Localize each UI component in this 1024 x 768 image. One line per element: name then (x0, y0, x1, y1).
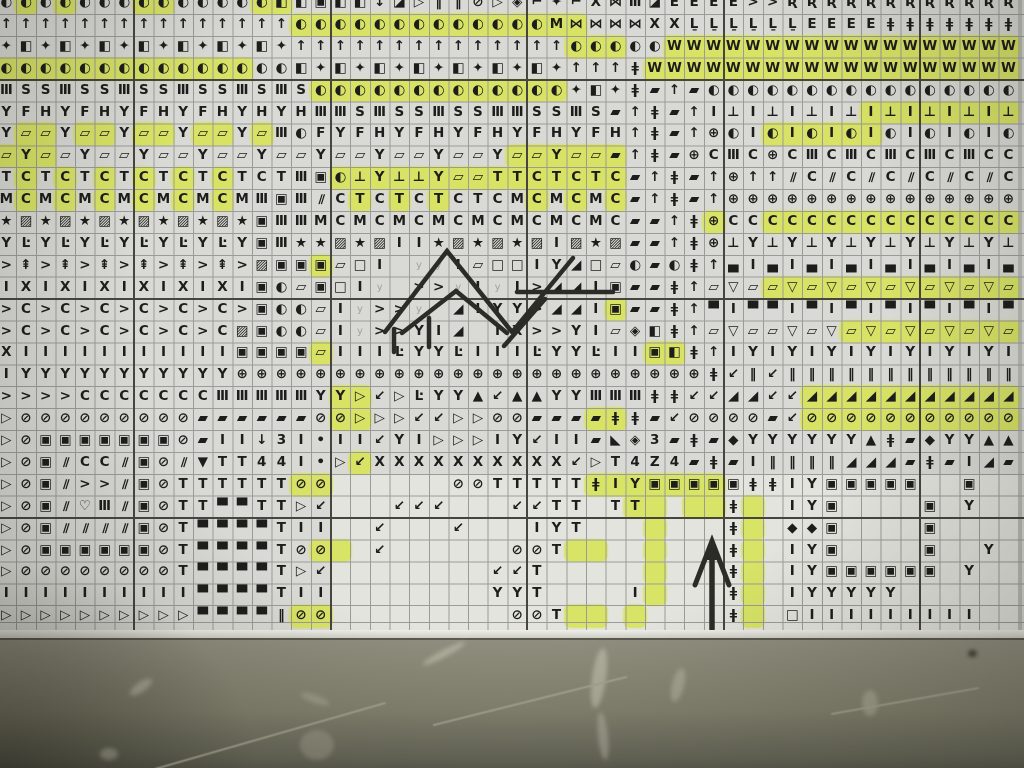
grid-cell-symbol: ▰ (665, 123, 685, 145)
grid-cell-symbol: ◢ (900, 386, 920, 408)
grid-cell-symbol: C (783, 145, 803, 167)
grid-cell-symbol: I (311, 518, 331, 540)
grid-cell-symbol: T (350, 189, 370, 211)
grid-cell-symbol: ǂ (684, 342, 704, 364)
grid-cell-symbol: ⊘ (468, 0, 488, 14)
grid-cell-symbol: > (154, 255, 174, 277)
grid-cell-symbol: W (783, 58, 803, 80)
grid-cell-symbol: ◐ (272, 299, 292, 321)
grid-cell-symbol: ↑ (684, 299, 704, 321)
grid-cell-symbol: C (959, 211, 979, 233)
grid-cell-symbol: ▰ (625, 277, 645, 299)
grid-cell-symbol: W (684, 36, 704, 58)
grid-cell-symbol: 3 (645, 430, 665, 452)
grid-cell-symbol: ◐ (625, 255, 645, 277)
grid-cell-symbol: ↑ (193, 14, 213, 36)
grid-cell-symbol: ◐ (881, 80, 901, 102)
grid-cell-symbol: I (606, 342, 626, 364)
grid-cell-symbol: Ŀ (55, 233, 75, 255)
grid-cell-symbol: I (409, 233, 429, 255)
grid-cell-symbol: C (704, 145, 724, 167)
grid-cell-symbol: Y (370, 145, 390, 167)
grid-cell-symbol: C (448, 211, 468, 233)
grid-cell-symbol: ↑ (527, 36, 547, 58)
grid-cell-symbol: W (900, 36, 920, 58)
grid-cell-symbol: 4 (625, 452, 645, 474)
grid-cell-symbol: ▣ (311, 0, 331, 14)
grid-cell-symbol: I (468, 277, 488, 299)
grid-cell-symbol: ★ (429, 233, 449, 255)
grid-cell-symbol: Ʀ (802, 0, 822, 14)
grid-cell-symbol: ✦ (114, 36, 134, 58)
grid-cell-symbol: ◐ (36, 58, 56, 80)
grid-cell-symbol: F (16, 102, 36, 124)
grid-cell-symbol: ∕∕ (55, 496, 75, 518)
grid-cell-symbol: Y (802, 583, 822, 605)
grid-cell-symbol: F (468, 123, 488, 145)
grid-cell-symbol: ▀ (959, 299, 979, 321)
grid-cell-symbol: ▽ (724, 277, 744, 299)
grid-cell-symbol: ▱ (154, 123, 174, 145)
grid-cell-symbol: ∕∕ (55, 474, 75, 496)
grid-cell-symbol: ◐ (134, 0, 154, 14)
grid-cell-symbol: ▣ (252, 299, 272, 321)
grid-cell-symbol: ∕∕ (55, 518, 75, 540)
grid-cell-symbol: ◧ (586, 80, 606, 102)
grid-cell-symbol: ‖ (272, 605, 292, 627)
grid-cell-symbol: I (783, 561, 803, 583)
grid-cell-symbol: ◐ (370, 80, 390, 102)
grid-cell-symbol: ▱ (36, 145, 56, 167)
grid-cell-symbol: ⊘ (311, 408, 331, 430)
grid-cell-symbol: ✦ (468, 58, 488, 80)
grid-cell-symbol: ↓ (370, 0, 390, 14)
grid-cell-symbol: ▱ (311, 299, 331, 321)
grid-cell-symbol: ▰ (625, 233, 645, 255)
grid-cell-symbol: W (665, 36, 685, 58)
grid-cell-symbol: > (0, 386, 16, 408)
grid-cell-symbol: ↙ (507, 561, 527, 583)
grid-cell-symbol: Y (448, 386, 468, 408)
grid-cell-symbol: ▀ (232, 605, 252, 627)
grid-cell-symbol: ▣ (95, 430, 115, 452)
grid-cell-symbol: ✦ (154, 36, 174, 58)
grid-cell-symbol: C (16, 167, 36, 189)
grid-cell-symbol: ▱ (252, 123, 272, 145)
grid-cell-symbol: ▱ (16, 123, 36, 145)
grid-cell-symbol: Ⅲ (272, 211, 292, 233)
wall-scuff-mark (968, 650, 977, 657)
grid-cell-symbol: I (763, 342, 783, 364)
grid-cell-symbol: ▱ (95, 123, 115, 145)
grid-cell-symbol: ⊕ (370, 364, 390, 386)
grid-cell-symbol: Ⅲ (488, 102, 508, 124)
grid-cell-symbol: I (173, 583, 193, 605)
grid-cell-symbol: T (606, 496, 626, 518)
grid-cell-symbol: ▱ (134, 123, 154, 145)
grid-cell-symbol: T (252, 474, 272, 496)
grid-cell-symbol: ◐ (527, 80, 547, 102)
grid-cell-symbol: Ʀ (861, 0, 881, 14)
grid-cell-symbol: ↙ (370, 518, 390, 540)
grid-cell-symbol: ǂ (724, 561, 744, 583)
grid-cell-symbol: C (95, 321, 115, 343)
grid-cell-symbol: ◐ (173, 58, 193, 80)
grid-cell-symbol: Y (114, 123, 134, 145)
grid-cell-symbol: Y (36, 364, 56, 386)
grid-cell-symbol: W (802, 58, 822, 80)
grid-cell-symbol: I (999, 342, 1019, 364)
grid-cell-symbol: ▰ (645, 277, 665, 299)
grid-cell-symbol: I (979, 102, 999, 124)
grid-cell-symbol: ‖ (900, 364, 920, 386)
grid-cell-symbol: ⊘ (95, 408, 115, 430)
grid-cell-symbol: ▲ (468, 386, 488, 408)
grid-cell-symbol: ▣ (822, 496, 842, 518)
grid-cell-symbol: ▣ (704, 474, 724, 496)
grid-cell-symbol: ◐ (724, 123, 744, 145)
grid-cell-symbol: C (193, 386, 213, 408)
grid-cell-symbol: ◣ (606, 430, 626, 452)
grid-cell-symbol: ▣ (252, 277, 272, 299)
grid-cell-symbol: T (429, 189, 449, 211)
grid-cell-symbol: ◪ (390, 0, 410, 14)
grid-cell-symbol: I (606, 474, 626, 496)
grid-cell-symbol: Y (547, 255, 567, 277)
grid-cell-symbol: X (527, 452, 547, 474)
grid-cell-symbol: T (272, 496, 292, 518)
grid-cell-symbol: C (999, 167, 1019, 189)
grid-cell-symbol: ▱ (920, 277, 940, 299)
grid-cell-symbol: ▽ (822, 321, 842, 343)
grid-cell-symbol: ✦ (311, 58, 331, 80)
grid-cell-symbol: T (193, 167, 213, 189)
grid-cell-symbol: ⊘ (36, 561, 56, 583)
grid-cell-symbol: ▷ (55, 605, 75, 627)
grid-cell-symbol: > (36, 321, 56, 343)
grid-cell-symbol: ↑ (625, 123, 645, 145)
grid-cell-symbol: ◐ (16, 0, 36, 14)
grid-cell-symbol: C (213, 321, 233, 343)
grid-cell-symbol: H (154, 102, 174, 124)
grid-cell-symbol: ▣ (311, 167, 331, 189)
grid-cell-symbol: ↑ (743, 167, 763, 189)
grid-cell-symbol: T (173, 496, 193, 518)
grid-cell-symbol: ▰ (900, 430, 920, 452)
grid-cell-symbol: M (507, 189, 527, 211)
grid-cell-symbol: Ⅲ (232, 80, 252, 102)
grid-cell-symbol: ⋈ (566, 14, 586, 36)
grid-cell-symbol: ↑ (665, 80, 685, 102)
grid-cell-symbol: ◢ (547, 299, 567, 321)
grid-cell-symbol: ◐ (507, 14, 527, 36)
grid-cell-symbol: □ (586, 255, 606, 277)
grid-cell-symbol: Y (566, 123, 586, 145)
grid-cell-symbol: ⇞ (173, 255, 193, 277)
grid-cell-symbol: ▣ (920, 540, 940, 562)
grid-cell-symbol: ▲ (861, 430, 881, 452)
grid-cell-symbol: ◐ (841, 123, 861, 145)
grid-cell-symbol: ⊘ (743, 408, 763, 430)
grid-cell-symbol: Ⅲ (429, 102, 449, 124)
grid-cell-symbol: ▷ (488, 0, 508, 14)
grid-cell-symbol: ▱ (606, 321, 626, 343)
grid-cell-symbol: ↙ (488, 386, 508, 408)
grid-cell-symbol: ⇞ (55, 255, 75, 277)
grid-cell-symbol: ⊕ (390, 364, 410, 386)
grid-cell-symbol: H (291, 102, 311, 124)
grid-cell-symbol: ◧ (213, 36, 233, 58)
grid-cell-symbol: C (213, 167, 233, 189)
grid-cell-symbol: I (841, 605, 861, 627)
grid-cell-symbol: I (232, 430, 252, 452)
grid-cell-symbol: ↑ (704, 255, 724, 277)
grid-cell-symbol: I (0, 277, 16, 299)
grid-cell-symbol: ▱ (95, 145, 115, 167)
grid-cell-symbol: ▰ (566, 408, 586, 430)
grid-cell-symbol: M (547, 14, 567, 36)
grid-cell-symbol: Y (252, 145, 272, 167)
grid-cell-symbol: C (134, 321, 154, 343)
grid-cell-symbol: C (920, 167, 940, 189)
grid-cell-symbol: ▰ (665, 145, 685, 167)
grid-cell-symbol: W (841, 58, 861, 80)
grid-cell-symbol: W (861, 58, 881, 80)
grid-cell-symbol: F (75, 102, 95, 124)
grid-cell-symbol: I (783, 299, 803, 321)
grid-cell-symbol: ◐ (763, 123, 783, 145)
grid-cell-symbol: C (213, 299, 233, 321)
grid-cell-symbol: I (783, 474, 803, 496)
grid-cell-symbol: ∕∕ (75, 518, 95, 540)
grid-cell-symbol: ◐ (95, 58, 115, 80)
grid-cell-symbol: Y (507, 583, 527, 605)
grid-cell-symbol: I (802, 605, 822, 627)
grid-cell-symbol: I (822, 102, 842, 124)
grid-cell-symbol: I (154, 583, 174, 605)
grid-cell-symbol: I (900, 102, 920, 124)
grid-cell-symbol: X (134, 277, 154, 299)
grid-cell-symbol: ⊘ (488, 408, 508, 430)
grid-cell-symbol: C (95, 452, 115, 474)
grid-cell-symbol: C (173, 189, 193, 211)
grid-cell-symbol: Y (114, 364, 134, 386)
grid-cell-symbol: C (900, 211, 920, 233)
grid-cell-symbol: ◢ (920, 386, 940, 408)
grid-cell-symbol: ▰ (606, 102, 626, 124)
grid-cell-symbol: Ⅲ (566, 102, 586, 124)
grid-cell-symbol: S (16, 80, 36, 102)
grid-cell-symbol: ◐ (154, 58, 174, 80)
grid-cell-symbol: ǂ (645, 145, 665, 167)
grid-cell-symbol: I (900, 605, 920, 627)
grid-cell-symbol: ▽ (861, 277, 881, 299)
grid-cell-symbol: X (665, 14, 685, 36)
grid-cell-symbol: ǂ (586, 474, 606, 496)
grid-cell-symbol: ‖ (448, 0, 468, 14)
grid-cell-symbol: T (173, 561, 193, 583)
grid-cell-symbol: ⊕ (350, 364, 370, 386)
grid-cell-symbol: C (488, 189, 508, 211)
grid-cell-symbol: ▰ (900, 452, 920, 474)
grid-cell-symbol: ↙ (665, 408, 685, 430)
grid-cell-symbol: I (861, 255, 881, 277)
grid-cell-symbol: C (743, 145, 763, 167)
grid-cell-symbol: T (252, 496, 272, 518)
grid-cell-symbol: ▰ (232, 408, 252, 430)
grid-cell-symbol: ‖ (783, 364, 803, 386)
grid-cell-symbol: □ (783, 605, 803, 627)
grid-cell-symbol: ⊘ (527, 540, 547, 562)
grid-cell-symbol: I (940, 102, 960, 124)
grid-cell-symbol: X (390, 452, 410, 474)
grid-cell-symbol: ▽ (900, 277, 920, 299)
grid-cell-symbol: ▰ (527, 408, 547, 430)
grid-cell-symbol: ▣ (75, 430, 95, 452)
grid-cell-symbol: C (959, 167, 979, 189)
grid-cell-symbol: ▣ (606, 277, 626, 299)
grid-cell-symbol: ǂ (625, 408, 645, 430)
grid-cell-symbol: > (75, 321, 95, 343)
grid-cell-symbol: ▱ (743, 277, 763, 299)
grid-cell-symbol: ◐ (743, 80, 763, 102)
grid-cell-symbol: ⊘ (173, 408, 193, 430)
grid-cell-symbol: ∕∕ (861, 167, 881, 189)
grid-cell-symbol: > (75, 255, 95, 277)
grid-cell-symbol: ▽ (900, 321, 920, 343)
grid-cell-symbol: ▱ (173, 145, 193, 167)
grid-cell-symbol: Y (547, 386, 567, 408)
grid-cell-symbol: ◢ (979, 386, 999, 408)
grid-cell-symbol: ▱ (763, 277, 783, 299)
grid-cell-symbol: ⊘ (527, 605, 547, 627)
grid-cell-symbol: ⊕ (272, 364, 292, 386)
grid-cell-symbol: > (114, 255, 134, 277)
grid-cell-symbol: W (704, 58, 724, 80)
grid-cell-symbol: W (959, 58, 979, 80)
grid-cell-symbol: ▣ (900, 474, 920, 496)
grid-cell-symbol: ▱ (154, 145, 174, 167)
grid-cell-symbol: W (861, 36, 881, 58)
grid-cell-symbol: Y (940, 430, 960, 452)
grid-cell-symbol: C (979, 211, 999, 233)
grid-cell-symbol: ▷ (0, 605, 16, 627)
grid-cell-symbol: ǂ (665, 167, 685, 189)
grid-cell-symbol: ◢ (861, 452, 881, 474)
grid-cell-symbol: ⊕ (724, 189, 744, 211)
grid-cell-symbol: ◐ (448, 80, 468, 102)
grid-cell-symbol: ⊕ (665, 364, 685, 386)
grid-cell-symbol: Y (743, 430, 763, 452)
grid-cell-symbol: X (507, 452, 527, 474)
grid-cell-symbol: ↙ (724, 364, 744, 386)
grid-cell-symbol: ▀ (232, 583, 252, 605)
grid-cell-symbol: Ŀ (527, 342, 547, 364)
grid-cell-symbol: ◢ (841, 386, 861, 408)
grid-cell-symbol: ▣ (822, 518, 842, 540)
grid-cell-symbol: ▱ (311, 342, 331, 364)
grid-cell-symbol: ◐ (0, 58, 16, 80)
grid-cell-symbol: H (36, 102, 56, 124)
grid-cell-symbol: ↑ (232, 14, 252, 36)
grid-cell-symbol: y (350, 299, 370, 321)
grid-cell-symbol: ◧ (488, 58, 508, 80)
grid-cell-symbol: Y (861, 342, 881, 364)
grid-cell-symbol: ▰ (625, 299, 645, 321)
grid-cell-symbol: W (900, 58, 920, 80)
grid-cell-symbol: ▷ (468, 430, 488, 452)
grid-cell-symbol: ◐ (350, 14, 370, 36)
grid-cell-symbol: ▰ (252, 408, 272, 430)
grid-cell-symbol: ◧ (252, 36, 272, 58)
grid-cell-symbol: I (527, 255, 547, 277)
grid-cell-symbol: T (154, 167, 174, 189)
grid-cell-symbol: ▨ (370, 233, 390, 255)
grid-cell-symbol: ◐ (488, 80, 508, 102)
grid-cell-symbol: ◧ (331, 0, 351, 14)
grid-cell-symbol: Y (822, 430, 842, 452)
grid-cell-symbol: ▰ (684, 167, 704, 189)
grid-cell-symbol: ⊘ (114, 561, 134, 583)
grid-cell-symbol: Y (940, 233, 960, 255)
grid-cell-symbol: Ⅲ (586, 386, 606, 408)
grid-cell-symbol: F (350, 123, 370, 145)
grid-cell-symbol: ⊕ (684, 145, 704, 167)
grid-cell-symbol: I (920, 605, 940, 627)
grid-cell-symbol: 4 (252, 452, 272, 474)
grid-cell-symbol: Ⅲ (0, 80, 16, 102)
grid-cell-symbol: ★ (291, 233, 311, 255)
grid-cell-symbol: I (940, 255, 960, 277)
grid-cell-symbol: T (173, 518, 193, 540)
grid-cell-symbol: Z (645, 452, 665, 474)
grid-cell-symbol: ⊘ (55, 408, 75, 430)
grid-cell-symbol: ✦ (390, 58, 410, 80)
grid-cell-symbol: ǂ (881, 14, 901, 36)
grid-cell-symbol: Y (16, 364, 36, 386)
grid-cell-symbol: T (272, 474, 292, 496)
grid-cell-symbol: I (783, 496, 803, 518)
grid-cell-symbol: ★ (468, 233, 488, 255)
grid-cell-symbol: I (0, 583, 16, 605)
grid-cell-symbol: T (547, 605, 567, 627)
grid-cell-symbol: I (213, 342, 233, 364)
grid-cell-symbol: ▲ (527, 386, 547, 408)
grid-cell-symbol: ▀ (252, 583, 272, 605)
grid-cell-symbol: ▣ (822, 474, 842, 496)
grid-cell-symbol: Y (272, 102, 292, 124)
grid-cell-symbol: ⊘ (154, 496, 174, 518)
grid-cell-symbol: ↙ (370, 386, 390, 408)
grid-cell-symbol: T (547, 496, 567, 518)
grid-cell-symbol: ◢ (724, 386, 744, 408)
grid-cell-symbol: W (999, 36, 1019, 58)
grid-cell-symbol: ▀ (193, 540, 213, 562)
grid-cell-symbol: W (940, 36, 960, 58)
grid-cell-symbol: ▽ (783, 321, 803, 343)
grid-cell-symbol: ↙ (763, 364, 783, 386)
grid-cell-symbol: ↑ (684, 277, 704, 299)
grid-cell-symbol: ↑ (488, 36, 508, 58)
grid-cell-symbol: ▱ (331, 145, 351, 167)
grid-cell-symbol: ⊕ (684, 364, 704, 386)
grid-cell-symbol: ⊘ (16, 496, 36, 518)
grid-cell-symbol: Y (763, 430, 783, 452)
grid-cell-symbol: ▷ (291, 496, 311, 518)
grid-cell-symbol: I (940, 605, 960, 627)
grid-cell-symbol: ▀ (193, 561, 213, 583)
grid-cell-symbol: ▨ (488, 233, 508, 255)
